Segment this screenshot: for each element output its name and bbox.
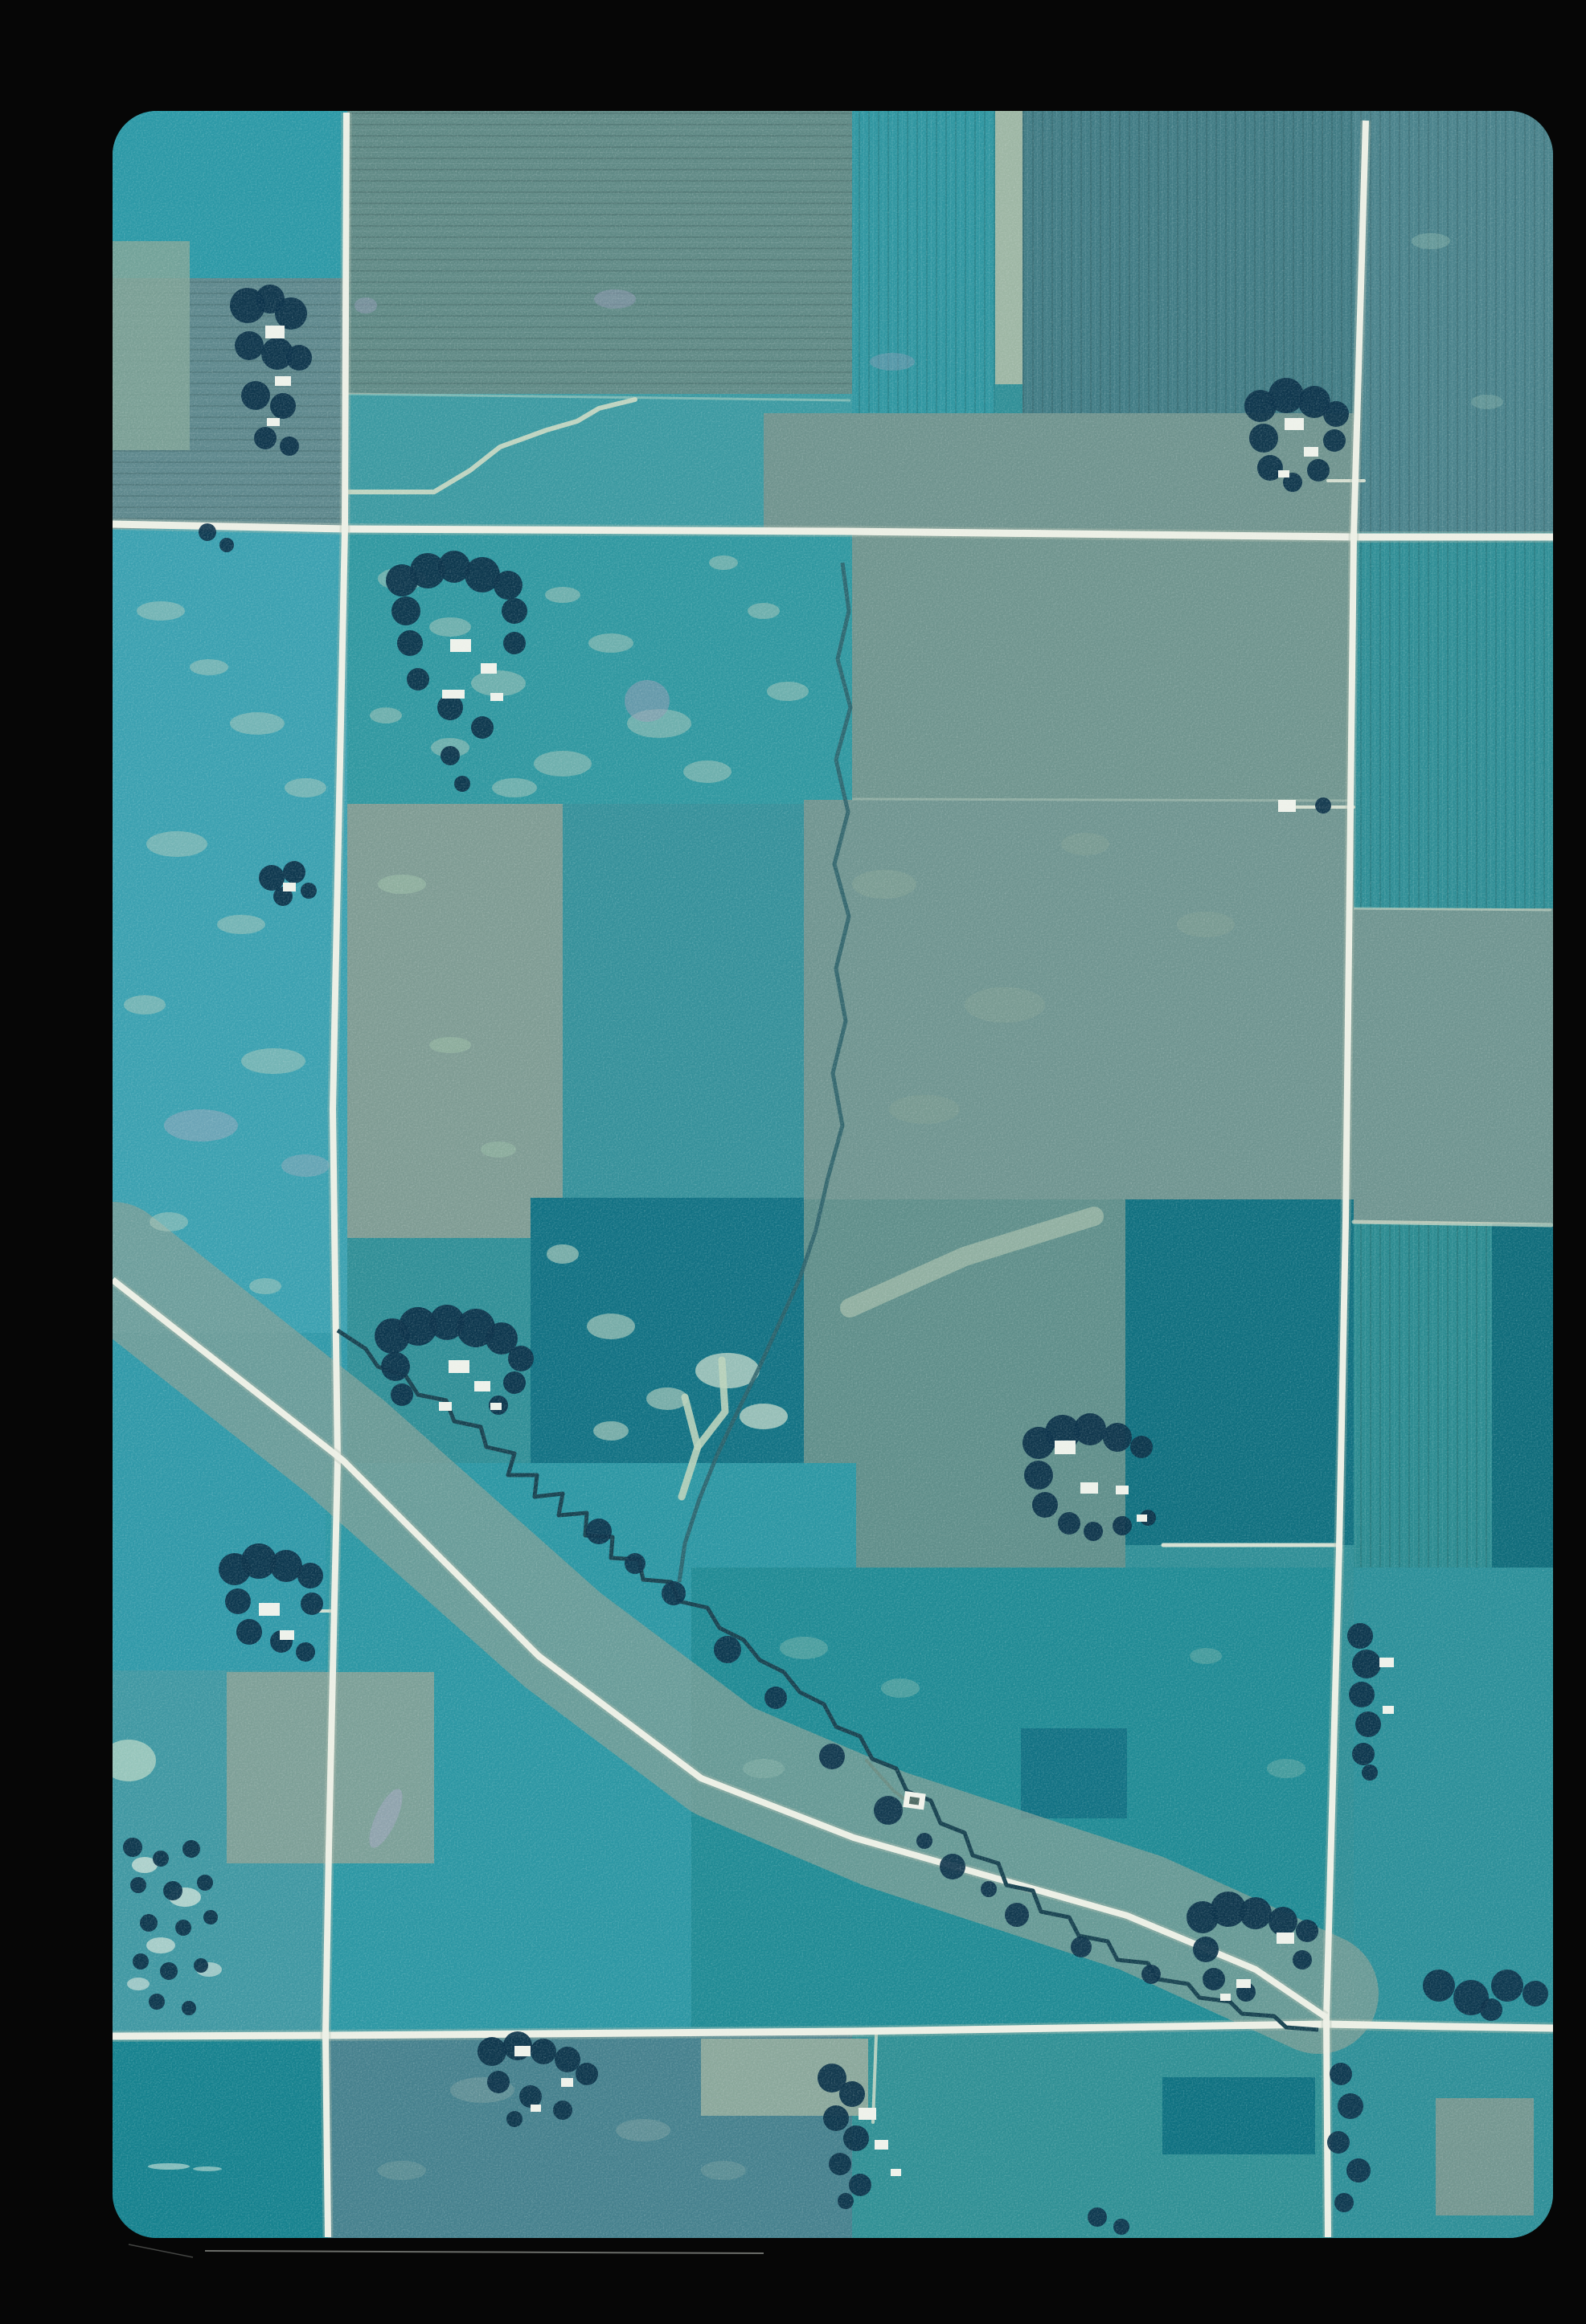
- aerial-photo-svg: [0, 0, 1586, 2324]
- film-grain-overlay: [113, 111, 1553, 2238]
- aerial-photo: [101, 111, 1553, 2238]
- slide-scan: [0, 0, 1586, 2324]
